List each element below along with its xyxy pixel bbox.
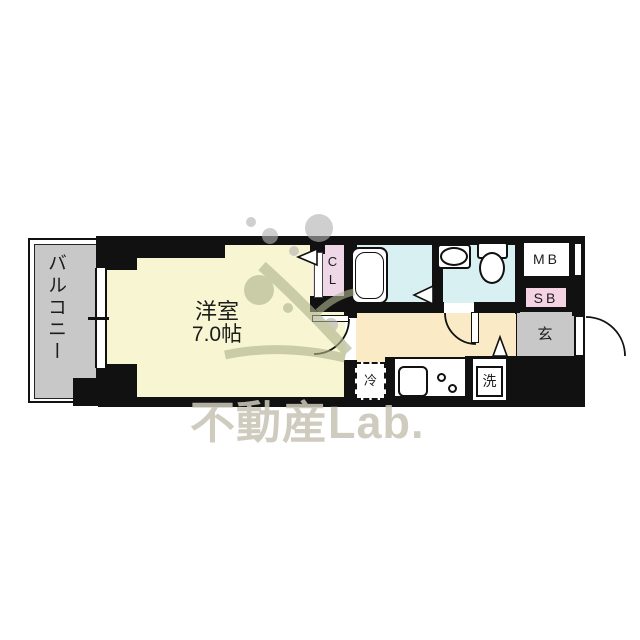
logo-circle [283,303,293,313]
logo-circle [246,217,256,227]
watermark-text: 不動産Lab. [190,386,425,451]
tree-logo-watermark [0,0,640,640]
logo-frond [225,350,345,358]
floorplan-canvas: バルコニー 洋室 7.0帖 CL MB SB 玄 冷 洗 不動産Lab. [0,0,640,640]
logo-circle [262,228,278,244]
logo-trunk [262,266,348,352]
logo-leaf [318,292,354,312]
logo-circle [305,214,333,242]
watermark-logo-group [225,214,354,358]
logo-circle [289,246,299,256]
